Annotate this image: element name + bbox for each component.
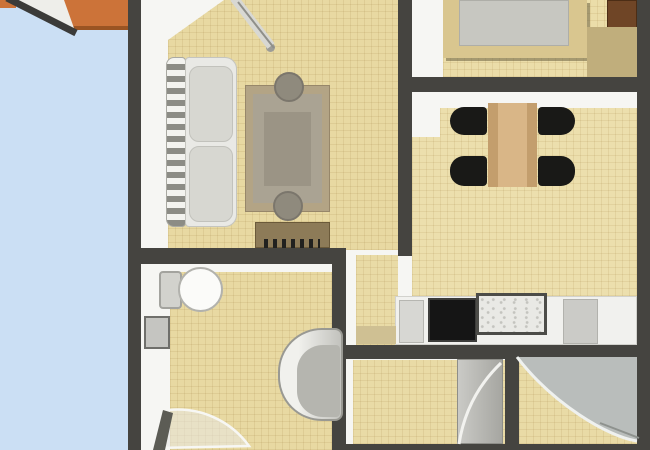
kitchen-south-wall	[332, 345, 650, 359]
south-edge-wall	[332, 444, 650, 450]
living-south-wall	[128, 248, 346, 264]
dining-chair-top-left	[450, 107, 487, 135]
bathtub-inner	[297, 345, 340, 417]
dining-chair-bottom-right	[538, 156, 575, 186]
counter-appliance	[563, 299, 598, 344]
shower-room-floor	[519, 355, 637, 444]
coffee-table-panel	[264, 112, 311, 186]
kitchen-sink	[476, 293, 547, 335]
toilet-bowl	[178, 267, 223, 312]
living-door-handle	[266, 43, 275, 52]
dining-chair-top-right	[538, 107, 575, 135]
sofa-cushion-top	[189, 66, 233, 142]
dining-table	[488, 103, 537, 187]
bedroom-south-wall	[398, 77, 650, 92]
floor-plan	[0, 0, 650, 450]
exterior-wall-right	[637, 0, 650, 450]
dining-floor-notch	[412, 108, 440, 137]
sofa-armrest	[166, 57, 186, 227]
bed-mattress	[459, 0, 569, 46]
terrace-floor	[0, 0, 128, 450]
stool-top	[274, 72, 304, 102]
dining-chair-bottom-left	[450, 156, 487, 186]
bedroom-chest	[587, 27, 637, 77]
living-dining-wall	[398, 0, 412, 256]
stool-bottom	[273, 191, 303, 221]
sofa-cushion-bottom	[189, 146, 233, 222]
terrace-roof-overhang	[62, 0, 130, 30]
hall-shower-divider-wall	[505, 355, 519, 450]
stove	[428, 298, 477, 342]
kitchen-mat	[356, 326, 396, 344]
bathroom-sink	[144, 316, 170, 349]
hall-door-leaf	[457, 359, 503, 444]
exterior-wall-left	[128, 0, 141, 450]
terrace-roof-corner	[0, 0, 16, 8]
kitchen-cabinet	[399, 300, 424, 343]
sideboard-keys	[264, 239, 320, 248]
